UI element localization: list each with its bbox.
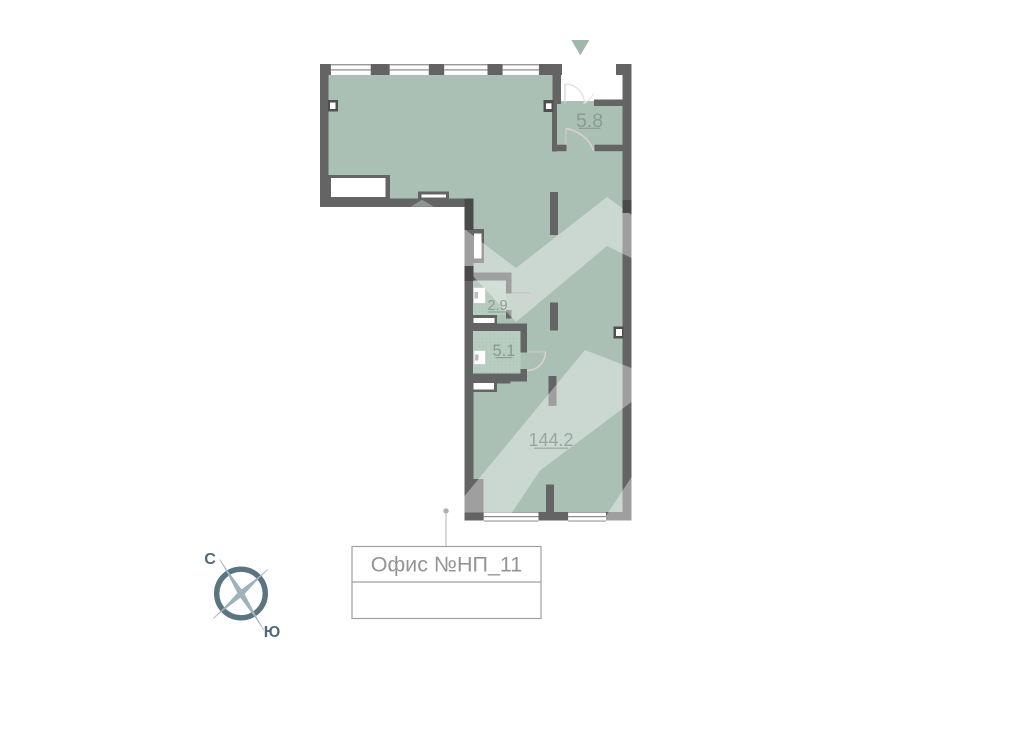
svg-text:Ю: Ю [264, 624, 281, 641]
svg-text:144.2: 144.2 [528, 430, 573, 450]
svg-text:Офис №НП_11: Офис №НП_11 [371, 553, 522, 577]
svg-text:С: С [204, 551, 216, 568]
